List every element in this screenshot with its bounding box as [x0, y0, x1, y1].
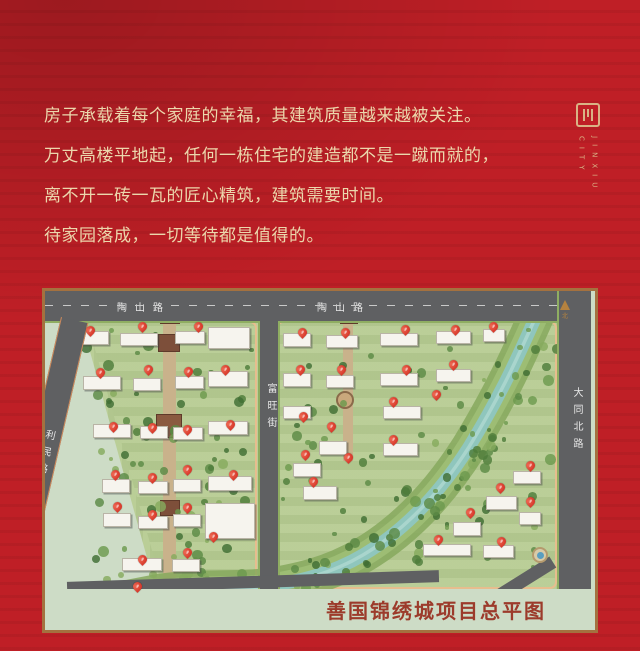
building	[173, 479, 201, 492]
tree	[361, 516, 367, 522]
building-pin: #	[400, 363, 413, 376]
tree	[332, 532, 337, 537]
building	[303, 486, 337, 500]
building-pin: #	[224, 418, 237, 431]
building	[293, 463, 321, 477]
tree	[294, 423, 299, 428]
intro-line-2: 万丈高楼平地起，任何一栋住宅的建造都不是一蹴而就的，	[44, 136, 559, 176]
building	[120, 333, 158, 346]
building	[453, 522, 481, 536]
building-pin: #	[494, 481, 507, 494]
building-pin: #	[487, 320, 500, 333]
tree	[291, 565, 299, 573]
building	[102, 479, 130, 493]
building-pin: #	[342, 451, 355, 464]
north-arrow-icon: 北	[560, 300, 570, 320]
building-pin: #	[524, 459, 537, 472]
road-label-datong: 大同北路	[569, 387, 584, 455]
building	[383, 406, 421, 419]
building	[319, 441, 347, 455]
building	[83, 376, 121, 390]
tree	[543, 375, 553, 385]
tree	[130, 461, 136, 467]
building-pin: #	[299, 448, 312, 461]
building-pin: #	[296, 326, 309, 339]
brand-logo: CITY JINXIU	[571, 103, 605, 193]
building	[175, 376, 204, 389]
brand-name-vertical: CITY JINXIU	[578, 136, 599, 193]
building-pin: #	[207, 530, 220, 543]
building-pin: #	[111, 500, 124, 513]
site-plan-scene: 陶山路 陶山路 利民路 富旺街 大同北路 善国锦绣城项目总平图 北 ###	[45, 291, 595, 630]
building-pin: #	[524, 495, 537, 508]
map-title: 善国锦绣城项目总平图	[291, 595, 581, 624]
tree	[92, 555, 100, 563]
building-pin: #	[109, 468, 122, 481]
building-pin: #	[131, 580, 144, 593]
road-label-fuwang: 富旺街	[263, 383, 278, 434]
tree	[531, 345, 540, 354]
tree	[545, 454, 556, 465]
tree	[160, 467, 168, 475]
building	[513, 471, 541, 484]
building-pin: #	[297, 410, 310, 423]
tree	[192, 528, 200, 536]
building-pin: #	[146, 471, 159, 484]
tree	[249, 348, 254, 353]
tree	[417, 368, 427, 378]
tree	[394, 496, 400, 502]
tree	[98, 448, 105, 455]
building-pin: #	[181, 463, 194, 476]
building-pin: #	[107, 420, 120, 433]
tree	[488, 433, 497, 442]
building	[519, 512, 541, 525]
road-taoshan: 陶山路 陶山路	[45, 291, 595, 323]
building-pin: #	[146, 421, 159, 434]
intro-line-1: 房子承载着每个家庭的幸福，其建筑质量越来越被关注。	[44, 96, 559, 136]
building-pin: #	[136, 320, 149, 333]
tree	[457, 401, 465, 409]
tree	[430, 506, 440, 516]
building-pin: #	[181, 501, 194, 514]
building-pin: #	[227, 468, 240, 481]
tree	[470, 431, 475, 436]
tree	[176, 533, 183, 540]
building-pin: #	[432, 533, 445, 546]
building-pin: #	[136, 553, 149, 566]
tree	[224, 448, 229, 453]
tree	[433, 489, 438, 494]
brand-word-city: CITY	[578, 136, 586, 193]
tree	[306, 363, 312, 369]
tree	[340, 508, 345, 513]
tree	[410, 496, 421, 507]
building	[133, 378, 161, 391]
tree	[495, 361, 502, 368]
building	[283, 373, 311, 387]
tree	[368, 353, 374, 359]
brand-word-jinxiu: JINXIU	[591, 136, 599, 193]
tree	[218, 459, 228, 469]
intro-line-3: 离不开一砖一瓦的匠心精筑，建筑需要时间。	[44, 176, 559, 216]
building-pin: #	[182, 365, 195, 378]
building-pin: #	[387, 395, 400, 408]
road-label-taoshan-west: 陶山路	[117, 299, 171, 314]
building	[103, 513, 131, 527]
building-pin: #	[181, 546, 194, 559]
tree	[292, 431, 301, 440]
tree	[443, 473, 451, 481]
tree	[486, 441, 496, 451]
tree	[502, 437, 506, 441]
tree	[447, 449, 452, 454]
building-pin: #	[399, 323, 412, 336]
building	[380, 373, 418, 386]
building	[436, 369, 471, 382]
building-pin: #	[387, 433, 400, 446]
building	[326, 375, 354, 388]
tree	[329, 405, 338, 414]
tree	[320, 558, 329, 567]
building-pin: #	[339, 326, 352, 339]
building	[173, 514, 201, 527]
tree	[208, 465, 214, 471]
building-pin: #	[94, 366, 107, 379]
building	[172, 559, 200, 572]
building	[380, 333, 418, 346]
building-pin: #	[325, 420, 338, 433]
tree	[512, 372, 520, 380]
building-pin: #	[335, 363, 348, 376]
fountain-roundabout	[532, 547, 548, 563]
road-fuwang: 富旺街	[258, 321, 280, 589]
building-pin: #	[449, 323, 462, 336]
building	[486, 496, 517, 510]
verge-east	[591, 291, 595, 630]
building	[383, 443, 418, 456]
building-pin: #	[142, 363, 155, 376]
building-pin: #	[294, 363, 307, 376]
road-datong: 大同北路	[557, 291, 593, 630]
tree	[98, 546, 109, 557]
tree	[134, 392, 138, 396]
building-pin: #	[430, 388, 443, 401]
north-label: 北	[562, 311, 568, 320]
building-pin: #	[219, 363, 232, 376]
tree	[432, 439, 440, 447]
building	[423, 544, 471, 556]
site-plan-frame: 陶山路 陶山路 利民路 富旺街 大同北路 善国锦绣城项目总平图 北 ###	[42, 288, 598, 633]
building-pin: #	[495, 535, 508, 548]
jinxiu-seal-icon	[576, 103, 600, 127]
promo-page: 房子承载着每个家庭的幸福，其建筑质量越来越被关注。 万丈高楼平地起，任何一栋住宅…	[0, 0, 640, 651]
road-label-taoshan-east: 陶山路	[317, 299, 371, 314]
building-pin: #	[464, 506, 477, 519]
tree	[499, 392, 504, 397]
tree	[415, 540, 423, 548]
intro-line-4: 待家园落成，一切等待都是值得的。	[44, 216, 559, 256]
building-pin: #	[84, 324, 97, 337]
intro-text: 房子承载着每个家庭的幸福，其建筑质量越来越被关注。 万丈高楼平地起，任何一栋住宅…	[44, 96, 559, 256]
tree	[443, 386, 447, 390]
tree	[305, 440, 310, 445]
building-pin: #	[181, 423, 194, 436]
tree	[222, 544, 231, 553]
tree	[364, 561, 371, 568]
tree	[389, 528, 400, 539]
building-pin: #	[307, 475, 320, 488]
tree	[480, 463, 489, 472]
tree	[484, 392, 491, 399]
tree	[245, 365, 250, 370]
building	[208, 327, 250, 349]
tree	[95, 498, 104, 507]
building-pin: #	[146, 508, 159, 521]
building	[175, 331, 205, 344]
tree	[283, 478, 290, 485]
building-pin: #	[447, 358, 460, 371]
title-strip: 善国锦绣城项目总平图	[45, 589, 595, 630]
tree	[109, 328, 114, 333]
tree	[93, 390, 103, 400]
tree	[177, 400, 185, 408]
building	[483, 545, 514, 558]
tree	[487, 428, 491, 432]
building-pin: #	[192, 320, 205, 333]
